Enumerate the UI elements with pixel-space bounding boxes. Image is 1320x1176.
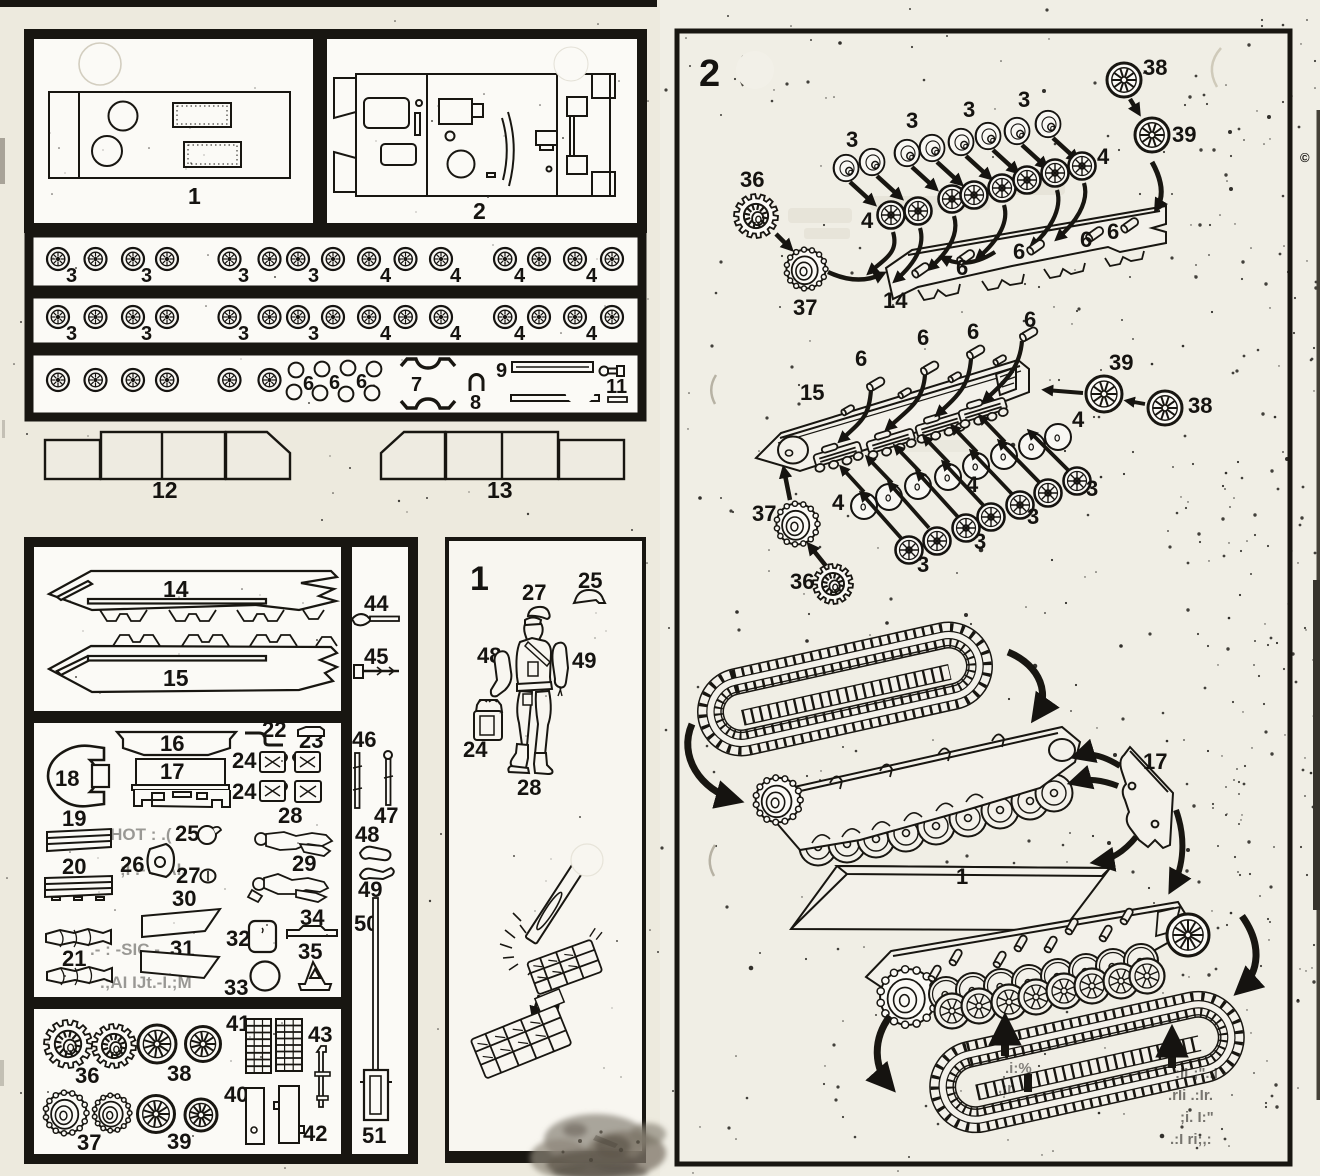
svg-text:44: 44 <box>364 591 389 616</box>
svg-text:3: 3 <box>1086 476 1098 501</box>
svg-text:30: 30 <box>172 886 196 911</box>
svg-text:38: 38 <box>167 1061 191 1086</box>
svg-text:39: 39 <box>1172 122 1196 147</box>
svg-text:37: 37 <box>793 295 817 320</box>
svg-text:40: 40 <box>224 1082 248 1107</box>
svg-text:28: 28 <box>278 803 302 828</box>
svg-text:17: 17 <box>160 759 184 784</box>
svg-text:19: 19 <box>62 806 86 831</box>
svg-text:3: 3 <box>308 323 319 345</box>
svg-text:39: 39 <box>167 1129 191 1154</box>
svg-text:3: 3 <box>141 323 152 345</box>
svg-text:4: 4 <box>450 323 462 345</box>
svg-text:2: 2 <box>473 198 486 224</box>
svg-text:©: © <box>1300 150 1310 165</box>
svg-text:4: 4 <box>380 323 392 345</box>
svg-text:1: 1 <box>956 864 968 889</box>
svg-text:7: 7 <box>411 374 422 396</box>
svg-text:4: 4 <box>832 490 845 515</box>
svg-text:6: 6 <box>303 373 314 395</box>
svg-text:36: 36 <box>740 167 764 192</box>
svg-text:6: 6 <box>356 371 367 393</box>
svg-text:49: 49 <box>572 648 596 673</box>
svg-text:32: 32 <box>226 926 250 951</box>
svg-text:38: 38 <box>1143 55 1167 80</box>
svg-text:3: 3 <box>963 97 975 122</box>
svg-text:12: 12 <box>152 477 178 503</box>
svg-text:15: 15 <box>800 380 824 405</box>
svg-text:6: 6 <box>1080 227 1092 252</box>
svg-text:17: 17 <box>1143 749 1167 774</box>
svg-text:6: 6 <box>1024 307 1036 332</box>
svg-text:29: 29 <box>292 851 316 876</box>
svg-text:3: 3 <box>66 323 77 345</box>
svg-text:16: 16 <box>160 731 184 756</box>
svg-text:4: 4 <box>514 323 526 345</box>
svg-text:3: 3 <box>238 323 249 345</box>
svg-text:20: 20 <box>62 854 86 879</box>
svg-text:9: 9 <box>496 360 507 382</box>
svg-text:6: 6 <box>1107 219 1119 244</box>
svg-text:,;r.: ,;r. <box>998 1080 1016 1097</box>
svg-text:6: 6 <box>855 346 867 371</box>
svg-text:15: 15 <box>163 665 189 691</box>
svg-text:6: 6 <box>956 255 968 280</box>
svg-text:28: 28 <box>517 775 541 800</box>
svg-text:14: 14 <box>163 576 189 602</box>
svg-text:43: 43 <box>308 1022 332 1047</box>
svg-text:48: 48 <box>355 822 379 847</box>
svg-text:3: 3 <box>141 265 152 287</box>
svg-text:18: 18 <box>55 766 79 791</box>
svg-text:1: 1 <box>188 183 201 209</box>
svg-text:24: 24 <box>232 748 257 773</box>
svg-text:38: 38 <box>1188 393 1212 418</box>
svg-text:36: 36 <box>75 1063 99 1088</box>
svg-text:3: 3 <box>1027 504 1039 529</box>
svg-text:13: 13 <box>487 477 513 503</box>
svg-text:3: 3 <box>238 265 249 287</box>
svg-text:3: 3 <box>846 127 858 152</box>
svg-text:35: 35 <box>298 939 322 964</box>
svg-text:4: 4 <box>1097 144 1110 169</box>
svg-text:6: 6 <box>1013 239 1025 264</box>
svg-text:3: 3 <box>974 529 986 554</box>
svg-text:51: 51 <box>362 1123 386 1148</box>
svg-text:39: 39 <box>1109 350 1133 375</box>
svg-text:4: 4 <box>1072 407 1085 432</box>
svg-text:4: 4 <box>586 265 598 287</box>
svg-text:4: 4 <box>514 265 526 287</box>
svg-text:3: 3 <box>1018 87 1030 112</box>
svg-text:33: 33 <box>224 975 248 1000</box>
svg-text:11: 11 <box>606 376 627 398</box>
svg-text:37: 37 <box>752 501 776 526</box>
svg-text:;i. I:": ;i. I:" <box>1180 1109 1214 1126</box>
svg-text:.i:%: .i:% <box>1005 1060 1032 1077</box>
svg-text:8: 8 <box>470 392 481 414</box>
svg-text:3: 3 <box>917 552 929 577</box>
svg-text:45: 45 <box>364 644 388 669</box>
svg-text:4: 4 <box>450 265 462 287</box>
svg-text:1: 1 <box>470 560 489 598</box>
svg-text:26: 26 <box>120 852 144 877</box>
svg-text:25: 25 <box>175 821 199 846</box>
svg-text:36: 36 <box>790 569 814 594</box>
svg-text:27: 27 <box>522 580 546 605</box>
svg-text:6: 6 <box>917 325 929 350</box>
svg-text:42: 42 <box>303 1121 327 1146</box>
svg-text:4: 4 <box>586 323 598 345</box>
svg-text:6: 6 <box>329 372 340 394</box>
svg-text:3: 3 <box>308 265 319 287</box>
svg-text:46: 46 <box>352 727 376 752</box>
svg-text:2: 2 <box>699 53 720 95</box>
svg-text::IL;"..I: :IL;"..I <box>1175 1065 1218 1082</box>
svg-text:37: 37 <box>77 1130 101 1155</box>
svg-text:4: 4 <box>380 265 392 287</box>
svg-text:14: 14 <box>883 288 908 313</box>
svg-text:4: 4 <box>861 208 874 233</box>
svg-text:24: 24 <box>232 779 257 804</box>
svg-text:.rIi .:Ir.: .rIi .:Ir. <box>1168 1087 1213 1104</box>
svg-text:3: 3 <box>906 108 918 133</box>
svg-text:27: 27 <box>176 863 200 888</box>
svg-text:.:I ri;,:: .:I ri;,: <box>1170 1131 1212 1148</box>
svg-text:21: 21 <box>62 946 86 971</box>
svg-text:6: 6 <box>967 319 979 344</box>
